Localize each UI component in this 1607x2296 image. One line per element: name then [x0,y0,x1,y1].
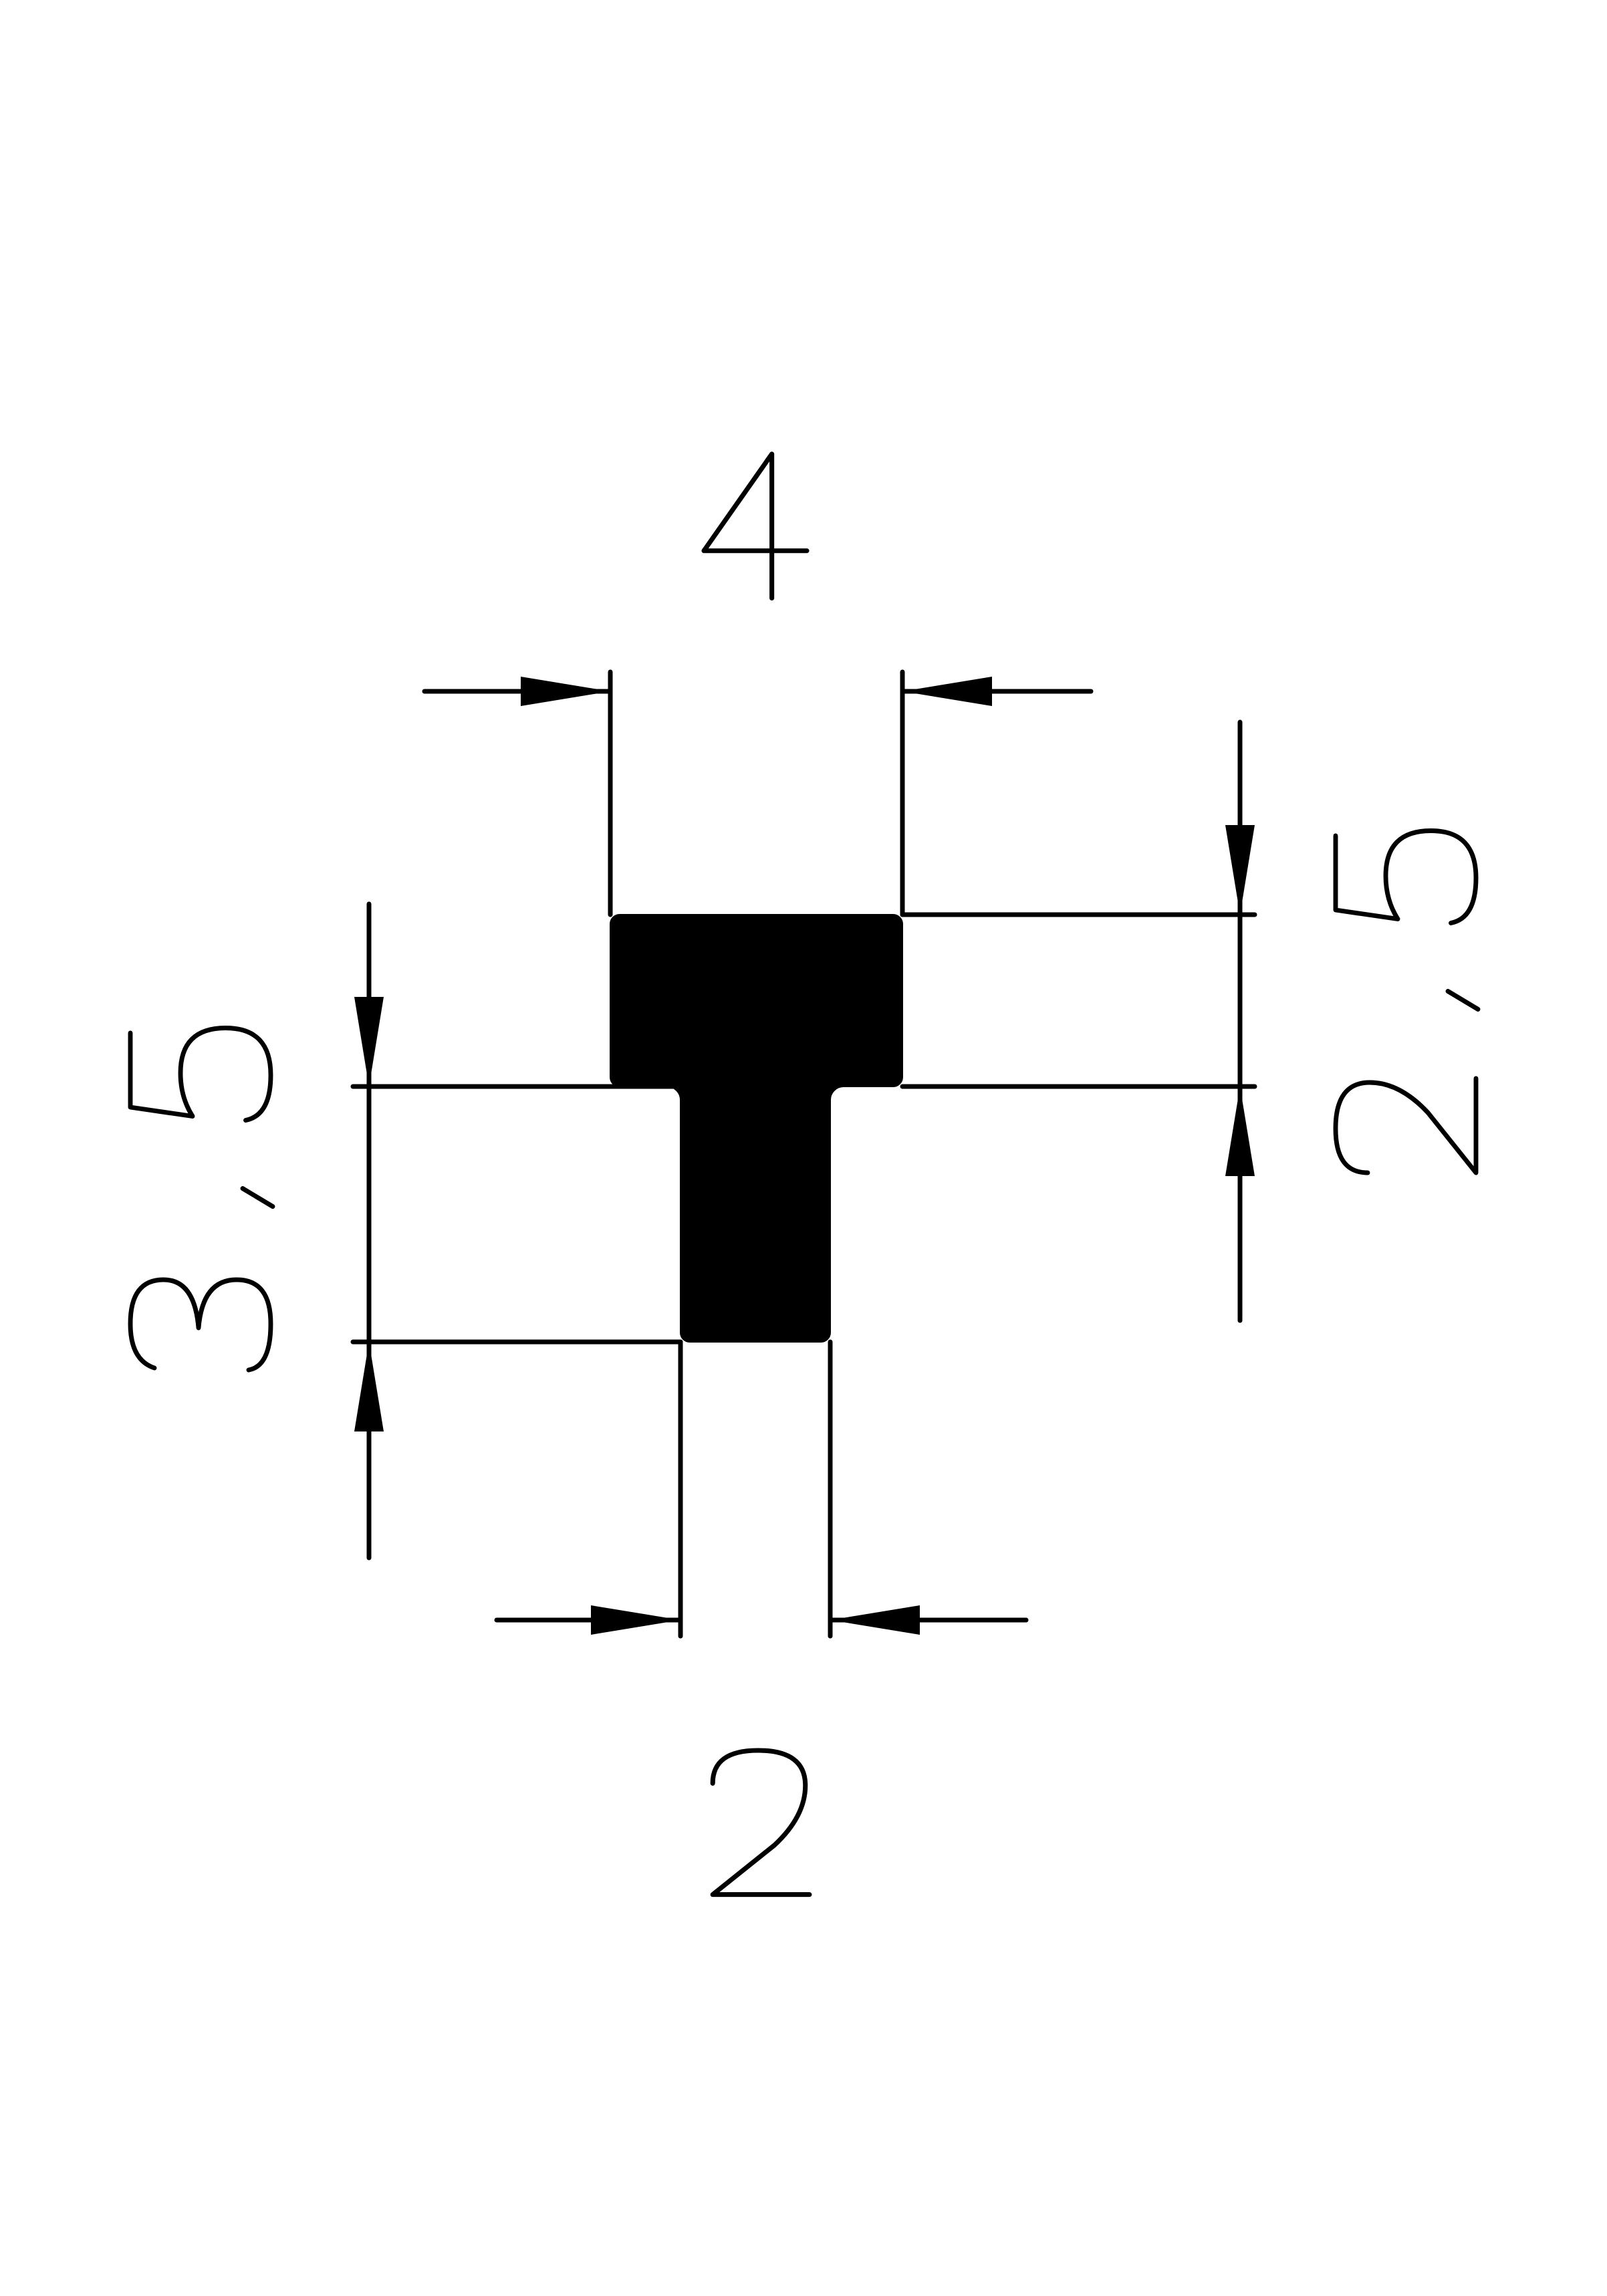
arrowhead-right-icon [521,677,610,706]
glyph-3 [130,1280,271,1370]
glyph-2 [713,1750,810,1895]
dimension-top-width [424,454,1091,915]
arrowhead-up-icon [354,1342,384,1431]
arrowhead-down-icon [1225,825,1255,915]
dimension-right-height [902,722,1478,1321]
glyph-2 [1336,1078,1476,1173]
dimension-bottom-width [497,1342,1026,1895]
arrowhead-left-icon [830,1605,920,1635]
dimension-left-height [130,904,681,1558]
glyph-4 [704,454,807,598]
glyph-dot [243,1189,273,1207]
glyph-5 [130,1028,271,1121]
t-profile-technical-drawing [0,0,1607,2296]
arrowhead-right-icon [591,1605,681,1635]
drawing-canvas [0,0,1607,2296]
dim-label-right [1336,831,1478,1173]
glyph-5 [1336,831,1476,923]
dim-label-bottom [713,1750,810,1895]
arrowhead-down-icon [354,997,384,1086]
arrowhead-up-icon [1225,1086,1255,1176]
arrowhead-left-icon [902,677,992,706]
dim-label-left [130,1028,273,1371]
dim-label-top [704,454,807,598]
glyph-dot [1448,992,1478,1010]
t-profile-shape [610,915,902,1342]
